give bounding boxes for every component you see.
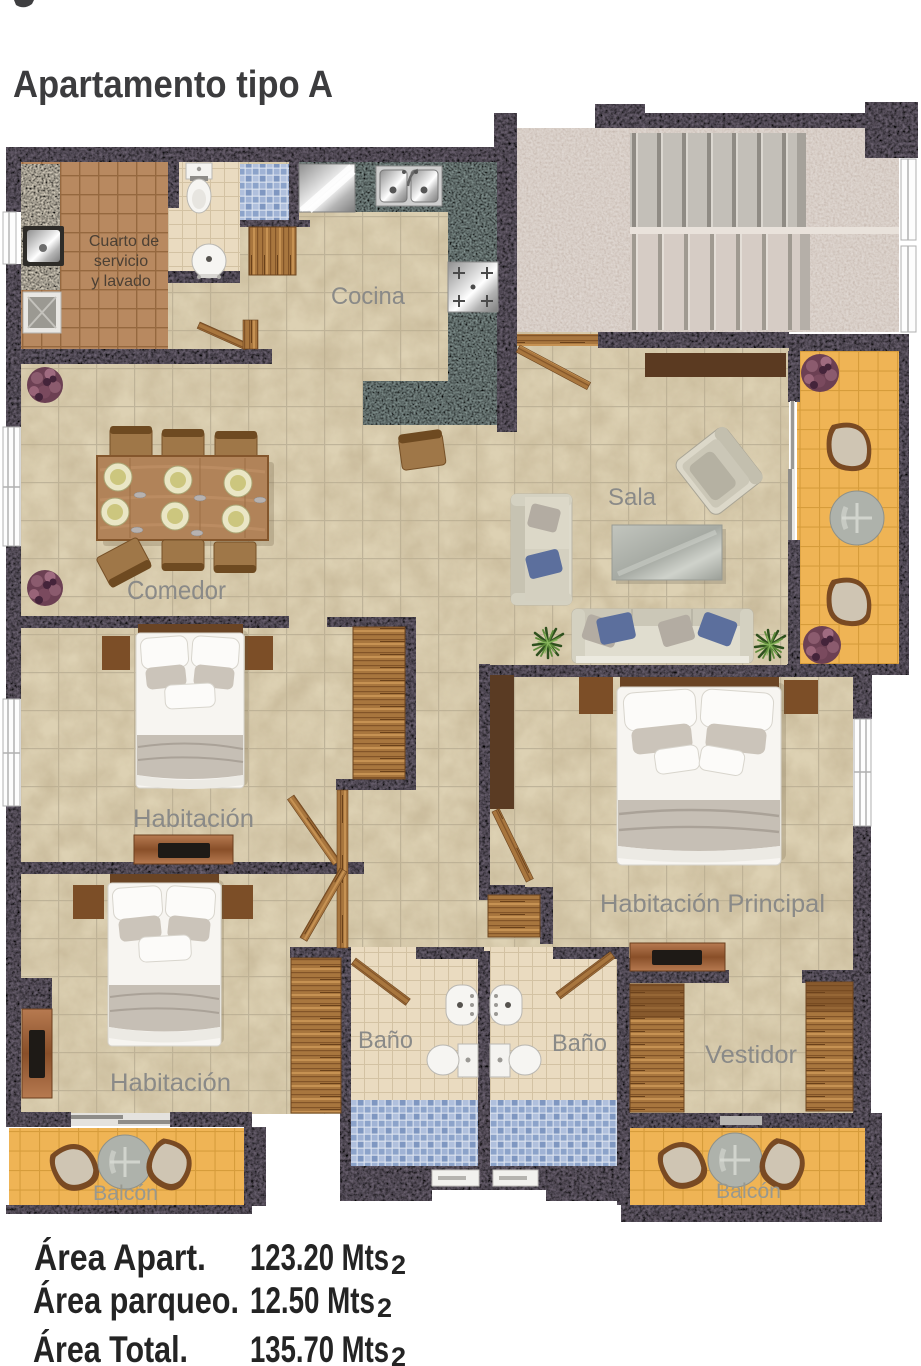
- svg-text:y lavado: y lavado: [91, 273, 151, 290]
- svg-text:2: 2: [391, 1250, 406, 1280]
- svg-text:12.50 Mts: 12.50 Mts: [250, 1280, 375, 1321]
- svg-text:Cocina: Cocina: [331, 283, 406, 310]
- svg-text:123.20 Mts: 123.20 Mts: [250, 1237, 389, 1278]
- svg-text:Habitación: Habitación: [133, 805, 254, 833]
- svg-text:Comedor: Comedor: [127, 575, 226, 605]
- svg-text:Área Total.: Área Total.: [33, 1329, 188, 1366]
- svg-text:2: 2: [377, 1293, 392, 1323]
- svg-text:Baño: Baño: [358, 1027, 413, 1054]
- svg-text:Vestidor: Vestidor: [705, 1041, 797, 1069]
- svg-text:Área Apart.: Área Apart.: [34, 1237, 206, 1278]
- svg-text:2: 2: [391, 1342, 406, 1366]
- svg-text:Cuarto de: Cuarto de: [89, 233, 159, 250]
- svg-text:servicio: servicio: [94, 253, 148, 270]
- svg-text:Habitación: Habitación: [110, 1069, 231, 1097]
- svg-text:Balcón: Balcón: [716, 1180, 781, 1203]
- svg-text:Baño: Baño: [552, 1030, 607, 1057]
- svg-text:135.70 Mts: 135.70 Mts: [250, 1329, 389, 1366]
- svg-text:Habitación Principal: Habitación Principal: [600, 890, 825, 918]
- svg-text:Área parqueo.: Área parqueo.: [33, 1280, 239, 1321]
- svg-text:Balcón: Balcón: [93, 1182, 158, 1205]
- svg-text:Apartamento tipo A: Apartamento tipo A: [13, 64, 333, 106]
- svg-text:Sala: Sala: [608, 484, 657, 511]
